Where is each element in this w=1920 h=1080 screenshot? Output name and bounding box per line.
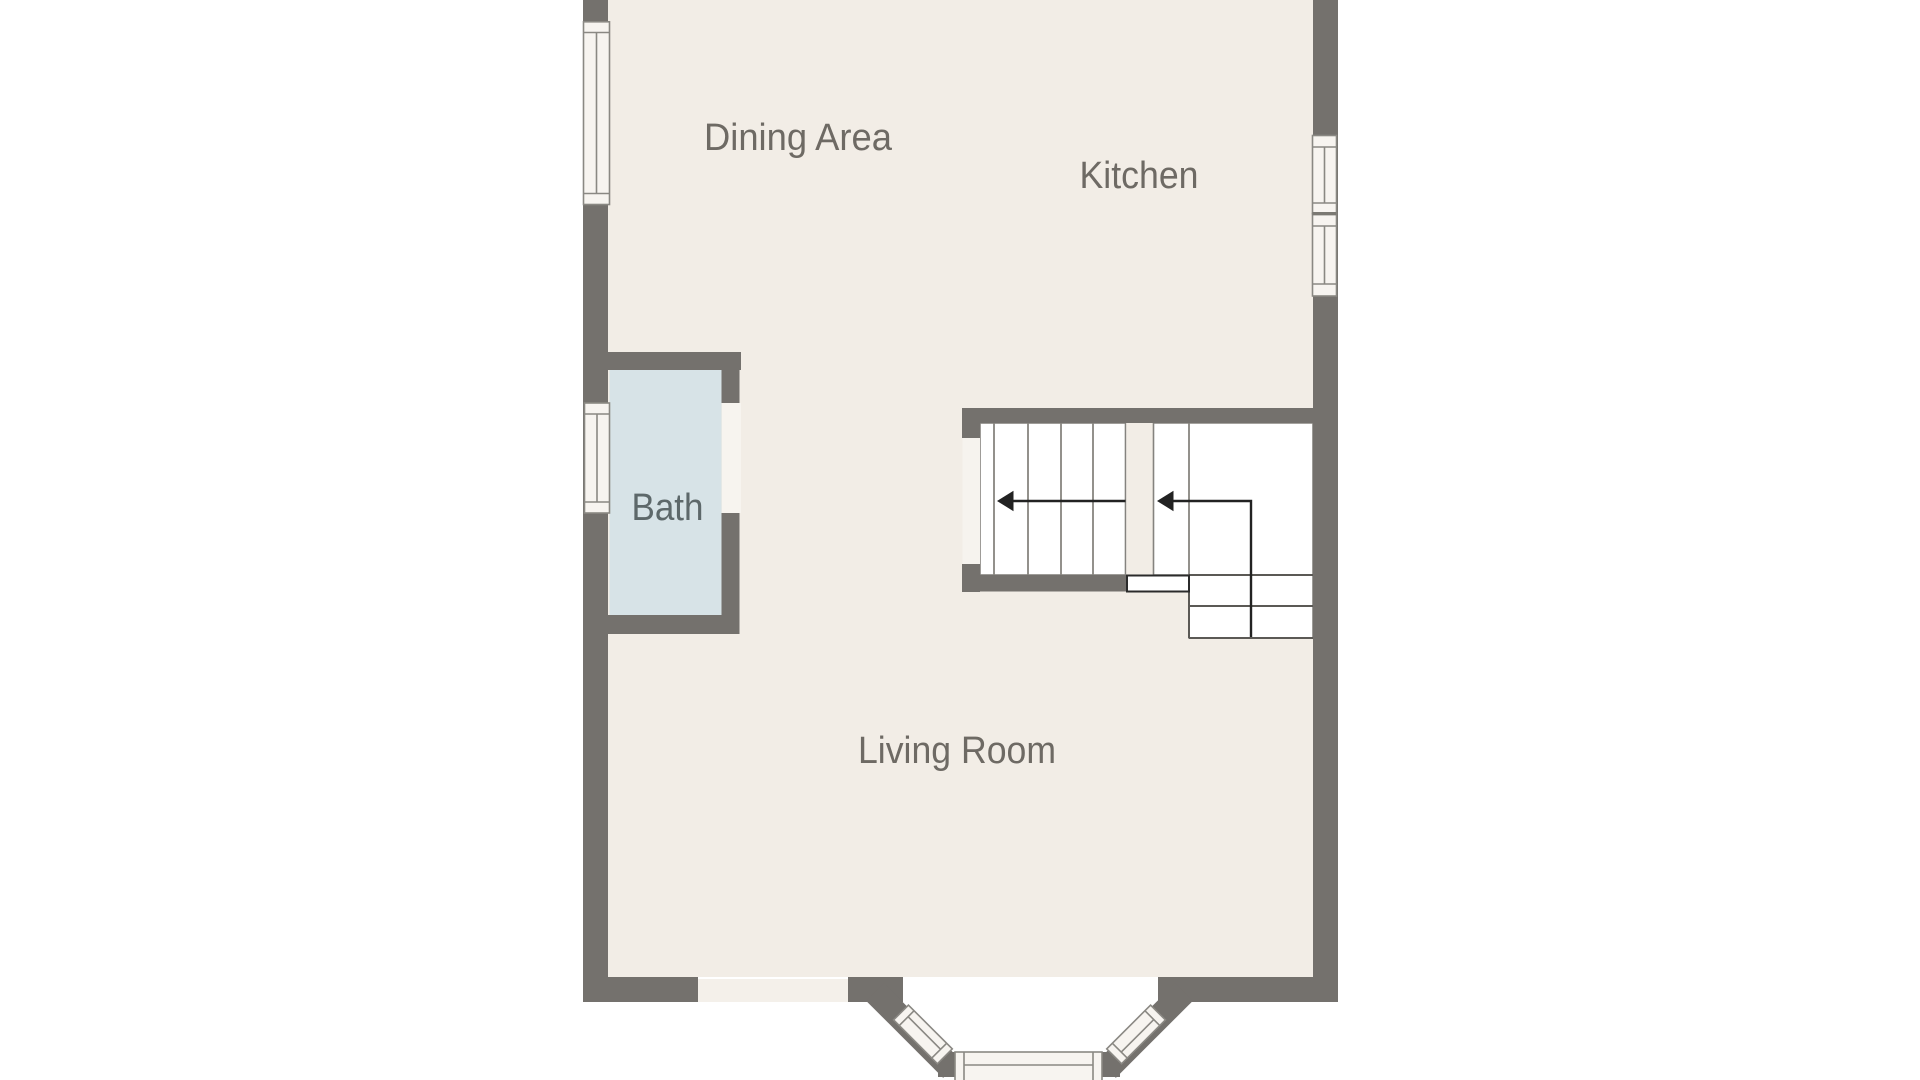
svg-text:Living Room: Living Room xyxy=(858,730,1056,772)
svg-text:Bath: Bath xyxy=(632,487,704,529)
svg-text:Kitchen: Kitchen xyxy=(1080,155,1199,197)
svg-text:Dining Area: Dining Area xyxy=(704,117,893,159)
